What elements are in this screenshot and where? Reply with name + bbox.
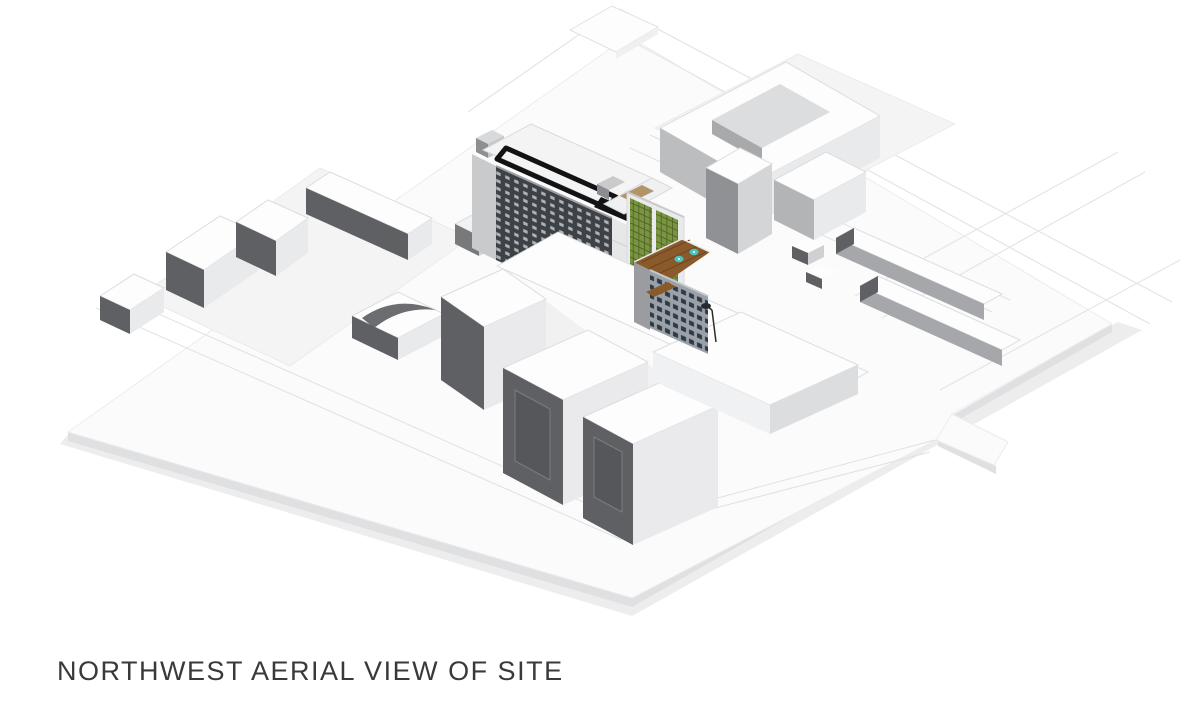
tower-end-wall bbox=[472, 154, 496, 260]
caption: NORTHWEST AERIAL VIEW OF SITE bbox=[57, 656, 564, 687]
companion-end-wall bbox=[634, 262, 650, 330]
architectural-diagram-page: NORTHWEST AERIAL VIEW OF SITE bbox=[0, 0, 1185, 701]
aerial-site-rendering bbox=[0, 0, 1185, 645]
